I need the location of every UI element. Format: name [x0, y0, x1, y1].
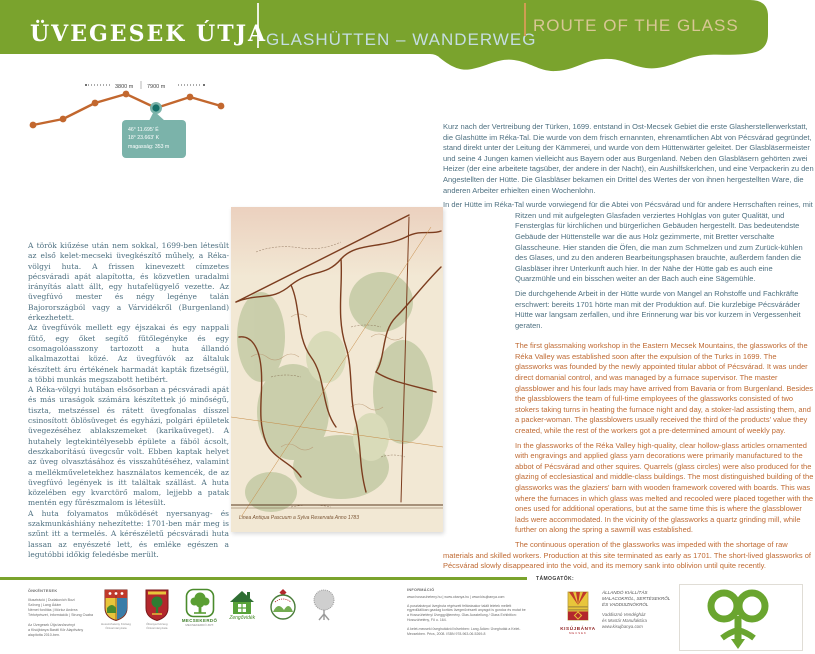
page-title-hungarian: ÜVEGESEK ÚTJA	[30, 21, 267, 47]
elevation-profile-chart: 3800 m 7900 m 46° 11.695' É 18° 23.663' …	[18, 76, 233, 181]
kisujbanya-logo: KISÚJBÁNYA MECSEK	[556, 590, 600, 635]
elevation-point	[187, 94, 194, 101]
shield-icon	[103, 588, 129, 622]
wrapped-text-block: In der Hütte im Réka-Tal wurde vorwiegen…	[443, 200, 814, 572]
info-text-1: A pusztabányai üveghuta régészeti feltár…	[407, 604, 527, 623]
house-icon	[227, 588, 257, 616]
tree-icon	[185, 588, 215, 618]
venue-text: Vaddisznó Vendégház és Mustár Manufaktúr…	[602, 612, 682, 630]
leader-endpoint	[203, 84, 205, 86]
footer-divider-line	[0, 577, 527, 580]
hosszuheteny-coat-of-arms: Hosszúhetény Község Önkormányzata	[100, 588, 132, 631]
kisujbanya-emblem-icon	[565, 590, 591, 624]
tooltip-elevation: magasság: 353 m	[128, 144, 169, 150]
logo-caption: Óbánya Község Önkormányzata	[146, 623, 167, 631]
gray-tree-logo	[308, 588, 340, 624]
round-emblem-icon	[268, 588, 298, 622]
exhibition-text: Állandó kiállítás malacokról, sertésekrő…	[602, 590, 682, 609]
header-divider	[257, 3, 259, 48]
elevation-point	[92, 100, 99, 107]
gray-tree-icon	[311, 588, 337, 624]
glass-route-symbol-box	[679, 584, 803, 651]
page-title-german: GLASHÜTTEN – WANDERWEG	[266, 30, 536, 50]
page-title-english: ROUTE OF THE GLASS	[533, 16, 739, 36]
obanya-coat-of-arms: Óbánya Község Önkormányzata	[141, 588, 173, 631]
kelet-mecsek-emblem	[267, 588, 299, 622]
kisujbanya-sub: MECSEK	[569, 631, 587, 635]
info-websites: www.hosszuheteny.hu | www.obanya.hu | ww…	[407, 595, 527, 600]
info-heading: INFORMÁCIÓ	[407, 588, 527, 593]
logo-caption: Hosszúhetény Község Önkormányzata	[101, 623, 131, 631]
elevation-point	[123, 91, 130, 98]
elevation-point	[60, 116, 67, 123]
glassblower-pipe-icon	[680, 585, 800, 649]
partner-logos: Hosszúhetény Község Önkormányzata Óbánya…	[100, 588, 340, 631]
supporter-description: Állandó kiállítás malacokról, sertésekrő…	[602, 590, 682, 630]
info-text-2: A kelet-mecseki üveghutákról bővebben: L…	[407, 627, 527, 637]
elevation-point	[218, 103, 225, 110]
distance-label-2: 7900 m	[147, 84, 166, 90]
info-block: INFORMÁCIÓ www.hosszuheteny.hu | www.oba…	[407, 588, 527, 640]
historic-map: Linea Antiqua Pascuum a Sylva Reservata …	[231, 207, 443, 532]
zengovidek-logo: Zengővidék	[226, 588, 258, 621]
waypoint-tooltip: 46° 11.695' É 18° 23.663' K magasság: 35…	[122, 111, 186, 158]
right-text-column: Kurz nach der Vertreibung der Türken, 16…	[443, 122, 814, 576]
logo-subcaption: MECSEKERDŐ ZRT.	[185, 624, 213, 628]
distance-label-1: 3800 m	[115, 84, 134, 90]
map-wrap-spacer	[443, 200, 515, 545]
mecsekerdo-logo: MECSEKERDŐ MECSEKERDŐ ZRT.	[182, 588, 217, 628]
supporters-heading: TÁMOGATÓK:	[536, 576, 574, 582]
logo-caption: Zengővidék	[229, 617, 255, 621]
tooltip-lat: 46° 11.695' É	[128, 126, 159, 133]
elevation-point	[152, 104, 159, 111]
shield-icon	[144, 588, 170, 622]
tooltip-lon: 18° 23.663' K	[128, 135, 160, 141]
elevation-point	[30, 122, 37, 129]
header-divider-2	[524, 3, 526, 36]
map-caption: Linea Antiqua Pascuum a Sylva Reservata …	[239, 515, 359, 521]
german-paragraph-1: Kurz nach der Vertreibung der Türken, 16…	[443, 122, 814, 196]
leader-endpoint	[85, 84, 87, 86]
hungarian-text: A török kiűzése után nem sokkal, 1699-be…	[28, 241, 229, 560]
